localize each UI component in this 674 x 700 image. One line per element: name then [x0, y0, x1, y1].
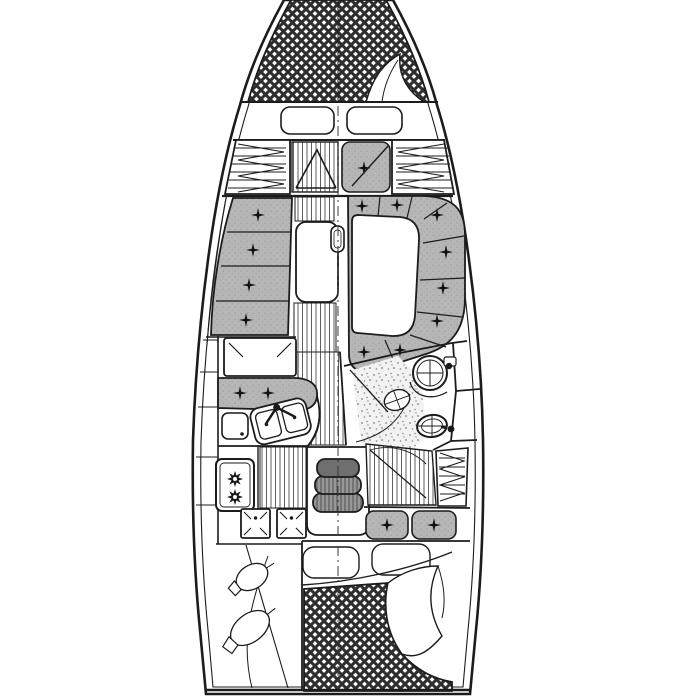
forward-cabin-floor: [292, 142, 338, 192]
aft-wall-line: [364, 507, 470, 508]
tap-icon: [446, 363, 452, 369]
aft-hanging-locker: [436, 448, 468, 506]
walkway-strip: [295, 197, 334, 221]
yacht-plan-stage: [0, 0, 674, 700]
walkway-strip: [294, 303, 336, 352]
burner-center: [233, 495, 237, 499]
burner-center: [233, 477, 237, 481]
icebox-latch: [240, 432, 244, 436]
flush-pump-icon: [448, 426, 455, 433]
yacht-layout-diagram: [0, 0, 674, 700]
stove: [216, 459, 254, 511]
aft-corridor: [366, 444, 436, 505]
dinette-table: [352, 215, 419, 336]
chart-table: [224, 338, 296, 376]
galley-sole: [260, 447, 306, 508]
fwd-seat-cushion: [347, 107, 402, 134]
aft-pillow: [303, 547, 359, 578]
icebox-lid: [222, 413, 248, 439]
fwd-seat-cushion: [281, 107, 334, 134]
salon-table-group: [296, 222, 344, 302]
